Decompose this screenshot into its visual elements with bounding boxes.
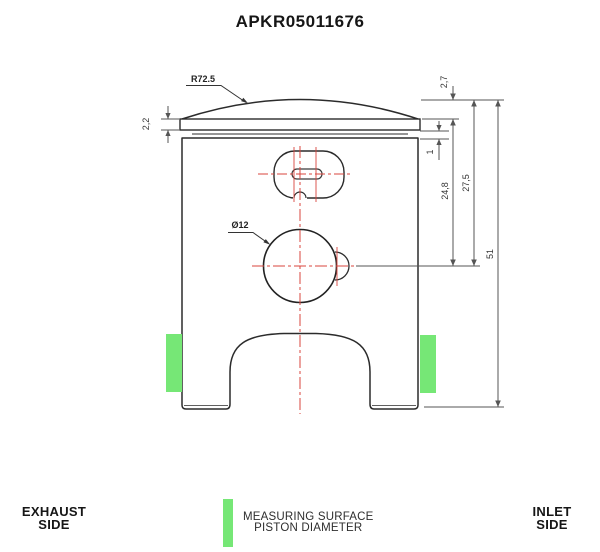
exhaust-side-label: EXHAUST SIDE	[12, 505, 96, 531]
piston-crown-dome	[182, 100, 418, 120]
measuring-surface-legend: MEASURING SURFACE PISTON DIAMETER	[223, 495, 374, 551]
crown-radius-label: R72.5	[191, 74, 215, 84]
inlet-side-label: INLET SIDE	[510, 505, 594, 531]
crown-radius-leader-line	[186, 86, 246, 103]
dim-label-dome-height: 2,7	[439, 76, 449, 89]
measuring-surface-highlight-left	[166, 334, 182, 392]
legend: EXHAUST SIDE MEASURING SURFACE PISTON DI…	[0, 498, 600, 548]
measuring-surface-swatch	[223, 499, 233, 547]
piston-top-land	[180, 119, 420, 130]
measuring-surface-highlight-right	[420, 335, 436, 393]
locating-pin-boss	[274, 151, 344, 200]
measuring-surface-text: MEASURING SURFACE PISTON DIAMETER	[243, 512, 374, 535]
piston-technical-drawing: 2,7 24,8 27,5 51 1 2,2 R72.5 Ø12	[0, 0, 600, 552]
crown-radius-arrowhead	[241, 98, 248, 104]
crown-radius-callout: R72.5	[186, 74, 248, 103]
dim-label-top-land: 2,2	[141, 118, 151, 131]
inlet-side-line2: SIDE	[510, 518, 594, 531]
measuring-surface-line2: PISTON DIAMETER	[243, 523, 374, 535]
dim-label-51: 51	[485, 249, 495, 259]
dim-label-27-5: 27,5	[461, 174, 471, 192]
exhaust-side-line2: SIDE	[12, 518, 96, 531]
pin-bore-label: Ø12	[231, 220, 248, 230]
dim-label-groove: 1	[425, 149, 435, 154]
dim-label-24-8: 24,8	[440, 182, 450, 200]
